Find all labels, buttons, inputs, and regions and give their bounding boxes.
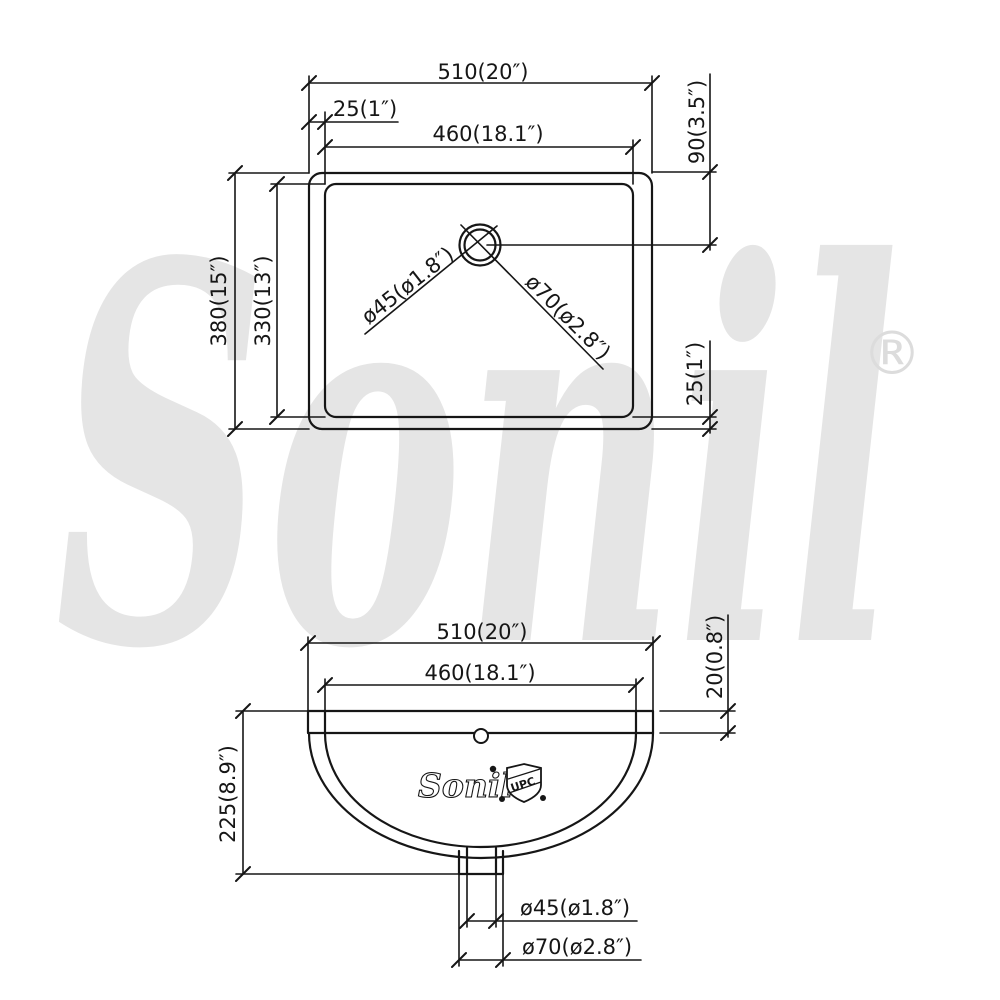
dim-label-460-top: 460(18.1″) bbox=[432, 122, 543, 146]
logo-registered-dot bbox=[490, 766, 496, 772]
leader-drain-inner-dia: ø45(ø1.8″) bbox=[357, 226, 497, 334]
overflow-hole bbox=[474, 729, 488, 743]
front-view: 510(20″) 460(18.1″) 20(0.8″) 225(8.9″) bbox=[216, 615, 735, 967]
dim-rim-offset-front-edge: 25(1″) bbox=[633, 341, 717, 436]
dim-label-drain-45-front: ø45(ø1.8″) bbox=[520, 896, 630, 920]
logo-dot-left bbox=[499, 796, 505, 802]
dim-label-25-right: 25(1″) bbox=[683, 342, 707, 406]
dim-label-drain-45-top: ø45(ø1.8″) bbox=[357, 242, 458, 329]
technical-drawing-page: Sonil ® 510(20″) bbox=[0, 0, 1000, 1000]
dim-label-510-top: 510(20″) bbox=[437, 60, 528, 84]
dim-label-25-top: 25(1″) bbox=[333, 97, 397, 121]
drain-stub bbox=[459, 848, 503, 874]
dim-label-drain-70-front: ø70(ø2.8″) bbox=[522, 935, 632, 959]
dim-label-90-right: 90(3.5″) bbox=[685, 80, 709, 164]
dim-basin-width-top: 460(18.1″) bbox=[318, 122, 640, 184]
dim-label-510-front: 510(20″) bbox=[436, 620, 527, 644]
dim-label-20-right: 20(0.8″) bbox=[703, 615, 727, 699]
dim-label-380-left: 380(15″) bbox=[207, 255, 231, 346]
sink-outline-top bbox=[309, 173, 652, 429]
top-view: 510(20″) 25(1″) 460(18.1″) 90(3.5″) bbox=[207, 60, 717, 436]
dim-drain-inner-dia-front: ø45(ø1.8″) bbox=[460, 874, 637, 928]
logo-brand-text: Sonil bbox=[418, 766, 513, 805]
rim-outer-outline bbox=[309, 173, 652, 429]
dim-label-330-left: 330(13″) bbox=[251, 255, 275, 346]
dim-basin-depth-left: 330(13″) bbox=[251, 177, 325, 424]
dim-rim-offset-top: 25(1″) bbox=[302, 97, 398, 184]
logo-dot-right bbox=[540, 795, 546, 801]
brand-logo: Sonil UPC bbox=[418, 764, 546, 805]
dim-label-225-left: 225(8.9″) bbox=[216, 745, 240, 843]
leader-drain-outer-dia: ø70(ø2.8″) bbox=[461, 225, 615, 369]
dim-rim-thickness: 20(0.8″) bbox=[660, 615, 735, 740]
sink-dimension-drawing: 510(20″) 25(1″) 460(18.1″) 90(3.5″) bbox=[0, 0, 1000, 1000]
dim-label-460-front: 460(18.1″) bbox=[424, 661, 535, 685]
dim-label-drain-70-top: ø70(ø2.8″) bbox=[521, 270, 616, 365]
dim-basin-width-front: 460(18.1″) bbox=[318, 661, 643, 711]
dim-drain-from-back: 90(3.5″) bbox=[487, 74, 717, 252]
